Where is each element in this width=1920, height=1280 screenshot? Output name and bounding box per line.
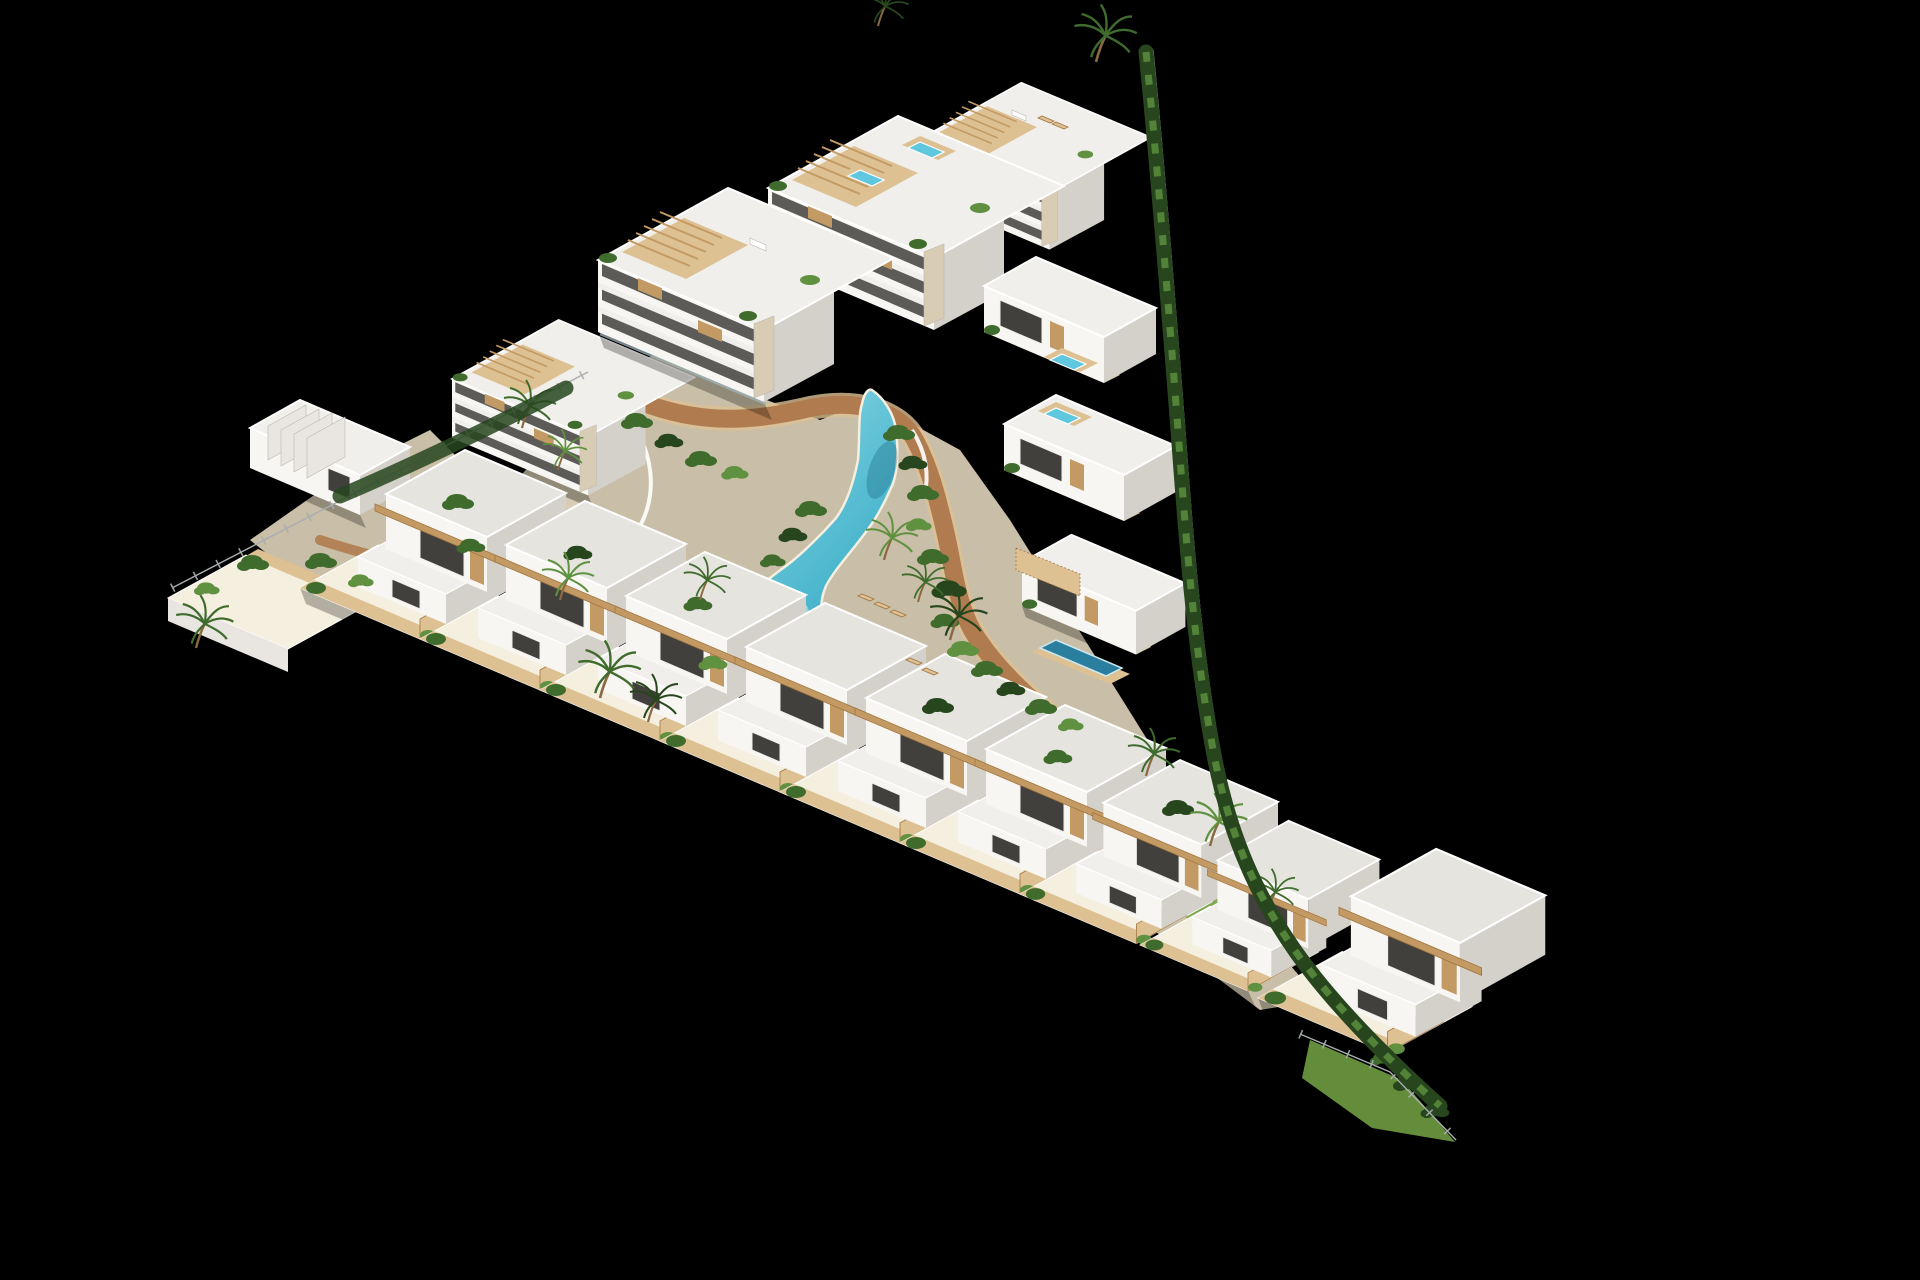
palm-tree <box>862 0 909 26</box>
palm-tree <box>1074 4 1136 62</box>
render-canvas <box>0 0 1920 1280</box>
site-plan-render <box>0 0 1920 1280</box>
wing-block <box>1004 395 1176 534</box>
wing-block <box>984 257 1156 396</box>
